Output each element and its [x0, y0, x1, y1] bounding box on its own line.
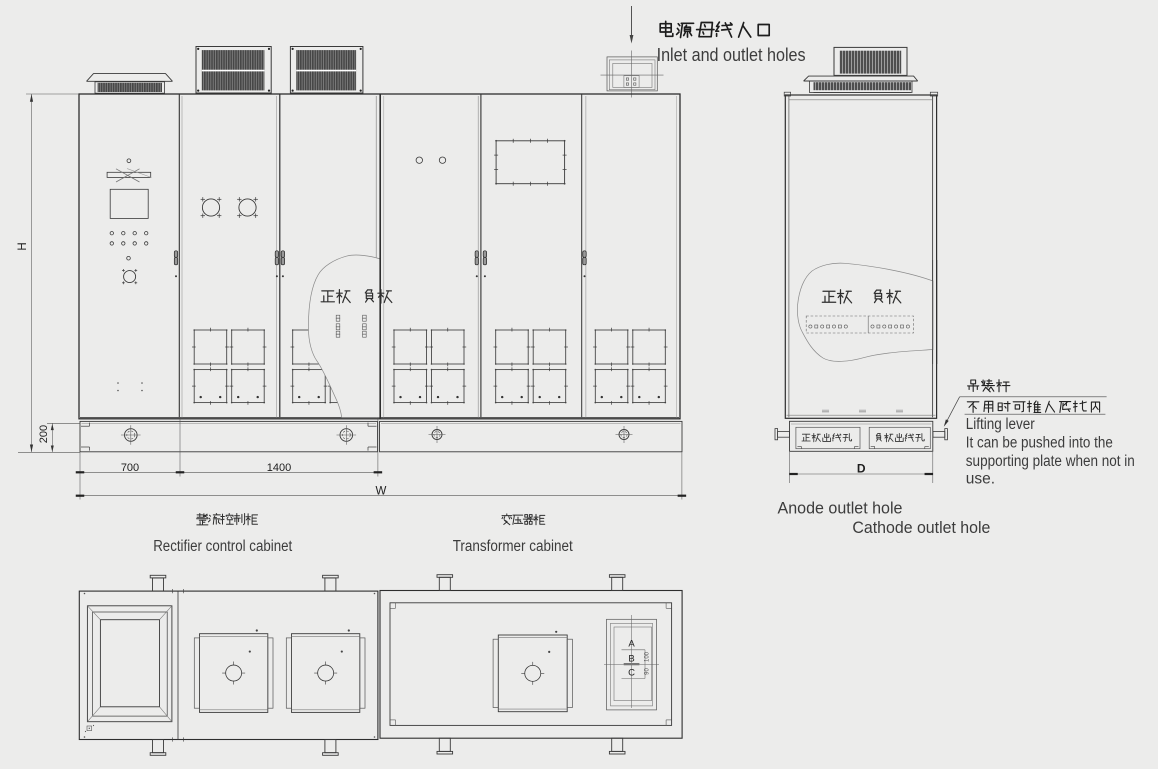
svg-text:It can be pushed into the: It can be pushed into the	[966, 435, 1113, 452]
svg-text:D: D	[857, 461, 866, 475]
svg-text:100: 100	[645, 651, 651, 662]
svg-text:Cathode outlet hole: Cathode outlet hole	[852, 519, 990, 537]
svg-text:A: A	[628, 639, 635, 650]
svg-text:200: 200	[38, 425, 50, 443]
svg-text:C: C	[628, 668, 635, 679]
svg-text:700: 700	[121, 462, 139, 474]
svg-text:use.: use.	[966, 471, 995, 488]
svg-text:B: B	[628, 653, 634, 664]
svg-text:Inlet and outlet holes: Inlet and outlet holes	[657, 45, 806, 65]
svg-text:supporting plate when not in: supporting plate when not in	[966, 453, 1135, 470]
svg-text:Transformer cabinet: Transformer cabinet	[453, 538, 574, 555]
svg-text:H: H	[17, 242, 29, 250]
svg-text:Anode outlet hole: Anode outlet hole	[778, 500, 903, 518]
svg-text:Lifting lever: Lifting lever	[966, 416, 1035, 433]
svg-text:90: 90	[645, 668, 651, 675]
svg-text:Rectifier control cabinet: Rectifier control cabinet	[153, 538, 293, 555]
svg-text:1400: 1400	[267, 462, 291, 474]
svg-text:W: W	[375, 486, 386, 498]
